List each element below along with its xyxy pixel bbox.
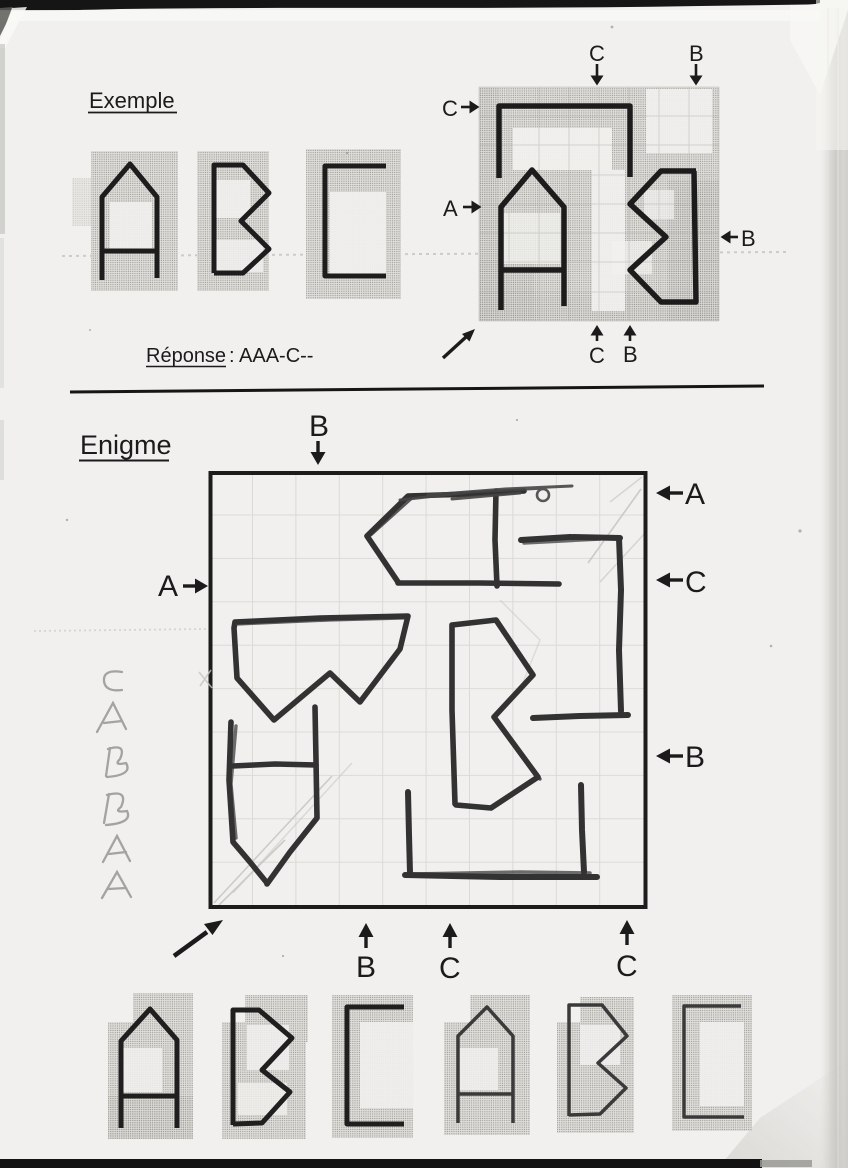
svg-text:C: C xyxy=(589,41,605,66)
svg-text:B: B xyxy=(689,41,704,66)
svg-text:A: A xyxy=(685,478,705,511)
svg-text:C: C xyxy=(616,950,638,983)
svg-text:Réponse: Réponse xyxy=(146,345,226,367)
svg-text:C: C xyxy=(442,96,458,121)
svg-text:B: B xyxy=(356,951,376,984)
svg-text:Exemple: Exemple xyxy=(89,88,175,113)
svg-text:A: A xyxy=(158,570,178,603)
svg-text:: AAA-C--: : AAA-C-- xyxy=(229,345,313,367)
svg-text:C: C xyxy=(589,343,605,368)
svg-text:A: A xyxy=(443,196,458,221)
svg-text:B: B xyxy=(623,342,638,367)
svg-text:B: B xyxy=(309,410,329,443)
svg-text:C: C xyxy=(685,566,707,599)
svg-text:Enigme: Enigme xyxy=(80,430,172,460)
svg-text:B: B xyxy=(685,741,705,774)
svg-text:B: B xyxy=(741,226,756,251)
svg-text:C: C xyxy=(439,952,461,985)
